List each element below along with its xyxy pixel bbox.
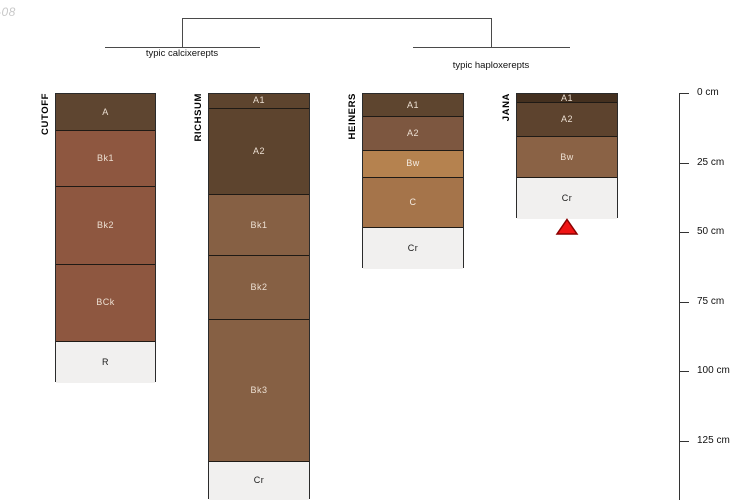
depth-tick (680, 441, 689, 442)
profile-column-jana: A1A2BwCr (516, 93, 618, 218)
profile-column-heiners: A1A2BwCCr (362, 93, 464, 268)
depth-tick (680, 302, 689, 303)
profile-column-richsum: A1A2Bk1Bk2Bk3Cr (208, 93, 310, 499)
horizon-bk3: Bk3 (209, 319, 309, 461)
horizon-label: A2 (561, 115, 573, 124)
profile-name-richsum: RICHSUM (193, 93, 206, 142)
horizon-bk2: Bk2 (56, 186, 155, 264)
depth-tick-label: 75 cm (697, 296, 724, 307)
horizon-bw: Bw (363, 150, 463, 178)
depth-tick-label: 125 cm (697, 435, 730, 446)
depth-tick-label: 50 cm (697, 226, 724, 237)
horizon-cr: Cr (363, 227, 463, 269)
sample-marker-triangle-icon (555, 218, 579, 236)
horizon-label: R (102, 358, 109, 367)
horizon-bw: Bw (517, 136, 617, 178)
watermark-text: -08 (0, 5, 16, 19)
horizon-bk1: Bk1 (209, 194, 309, 255)
horizon-cr: Cr (517, 177, 617, 219)
horizon-label: Cr (562, 194, 573, 203)
profile-name-jana: JANA (501, 93, 514, 121)
horizon-a1: A1 (209, 94, 309, 108)
horizon-bck: BCk (56, 264, 155, 342)
horizon-r: R (56, 341, 155, 383)
horizon-label: Bk1 (97, 154, 114, 163)
depth-tick (680, 371, 689, 372)
horizon-label: A (102, 108, 109, 117)
horizon-a2: A2 (209, 108, 309, 194)
classification-tree-bracket (182, 18, 492, 48)
soil-profile-figure: -08 typic calcixerepts typic haploxerept… (0, 0, 750, 500)
depth-tick (680, 93, 689, 94)
horizon-label: A1 (407, 101, 419, 110)
horizon-label: Bk1 (250, 221, 267, 230)
profile-column-cutoff: ABk1Bk2BCkR (55, 93, 156, 382)
depth-scale-axis (679, 93, 680, 500)
horizon-label: A1 (561, 94, 573, 102)
profile-name-cutoff: CUTOFF (40, 93, 53, 135)
horizon-bk1: Bk1 (56, 130, 155, 186)
depth-tick (680, 163, 689, 164)
horizon-label: Bw (560, 153, 574, 162)
horizon-a2: A2 (517, 102, 617, 135)
horizon-label: Bw (406, 159, 420, 168)
group-label-haploxerepts: typic haploxerepts (406, 60, 576, 71)
depth-tick-label: 100 cm (697, 365, 730, 376)
horizon-a2: A2 (363, 116, 463, 149)
horizon-label: Cr (408, 244, 419, 253)
horizon-label: Cr (254, 476, 265, 485)
horizon-label: BCk (96, 298, 115, 307)
profile-name-heiners: HEINERS (347, 93, 360, 139)
depth-tick-label: 25 cm (697, 157, 724, 168)
horizon-c: C (363, 177, 463, 227)
horizon-cr: Cr (209, 461, 309, 500)
horizon-label: A2 (253, 147, 265, 156)
horizon-label: Bk2 (97, 221, 114, 230)
group-label-calcixerepts: typic calcixerepts (97, 48, 267, 59)
horizon-label: A1 (253, 96, 265, 105)
horizon-a: A (56, 94, 155, 130)
horizon-label: Bk3 (250, 386, 267, 395)
horizon-bk2: Bk2 (209, 255, 309, 319)
horizon-a1: A1 (363, 94, 463, 116)
horizon-label: A2 (407, 129, 419, 138)
haploxerepts-branch-line (413, 47, 570, 48)
horizon-a1: A1 (517, 94, 617, 102)
depth-tick (680, 232, 689, 233)
horizon-label: C (410, 198, 417, 207)
depth-tick-label: 0 cm (697, 87, 719, 98)
horizon-label: Bk2 (250, 283, 267, 292)
